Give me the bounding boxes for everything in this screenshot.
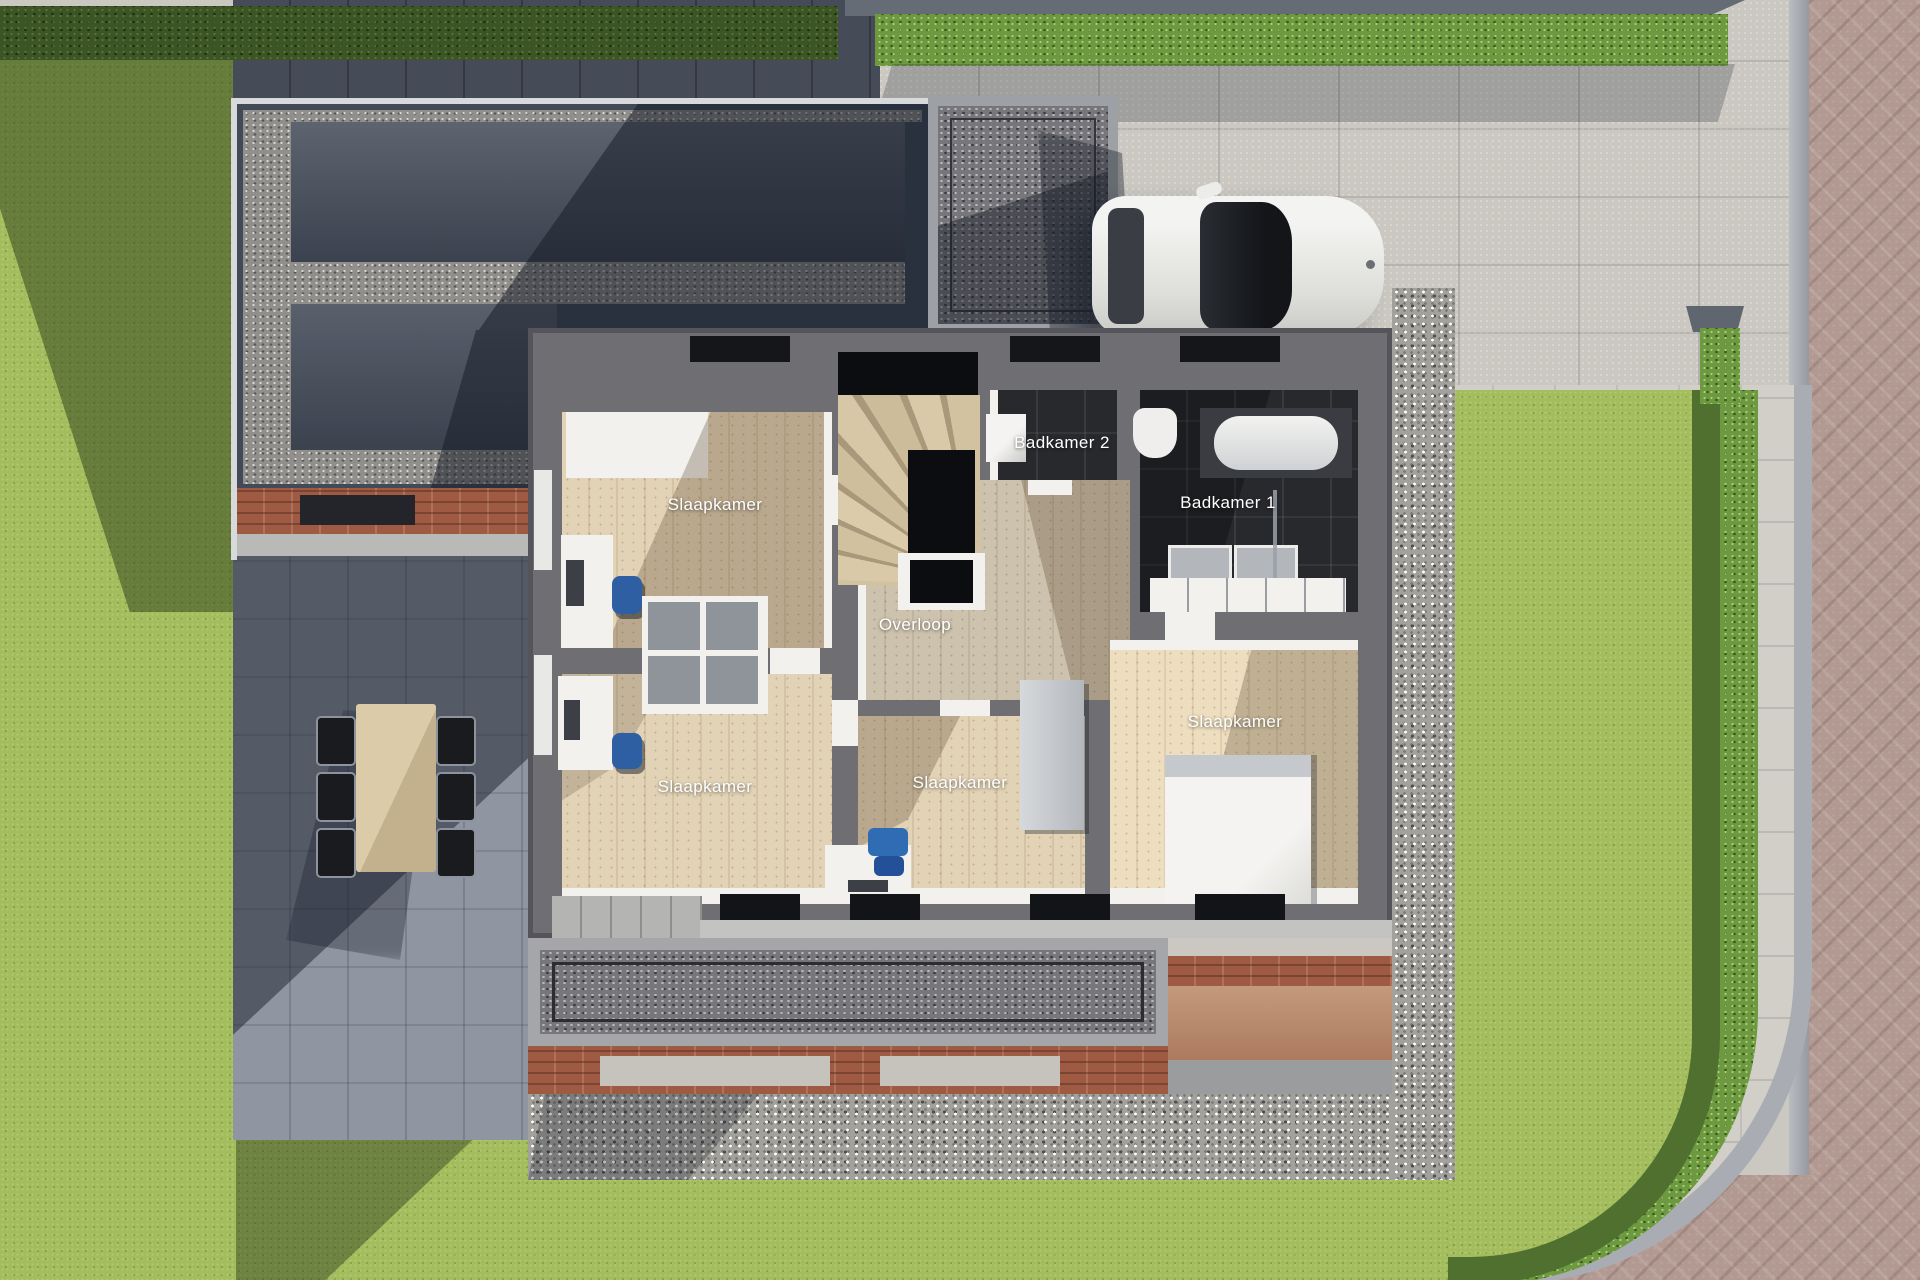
room-label: Slaapkamer xyxy=(658,777,753,797)
dining-table xyxy=(356,704,436,872)
car-glass-cabin xyxy=(1200,202,1292,330)
door-threshold xyxy=(770,648,820,674)
wardrobe xyxy=(1020,680,1084,830)
wall-face-lit xyxy=(1110,640,1358,650)
facade-window-void xyxy=(720,894,800,920)
hedge-top-right xyxy=(875,14,1728,66)
office-chair xyxy=(612,576,642,614)
facade-window-void xyxy=(1030,894,1110,920)
bathtub xyxy=(1214,416,1338,470)
bed-headboard xyxy=(1165,755,1311,777)
dining-chair xyxy=(316,772,356,822)
terracotta-roof-slope xyxy=(1168,986,1392,1060)
facade-window-void xyxy=(1195,894,1285,920)
brick-wall-recess xyxy=(880,1056,1060,1086)
office-chair-base xyxy=(874,856,904,876)
room-label: Slaapkamer xyxy=(913,773,1008,793)
toilet xyxy=(1133,408,1177,458)
lawn-right xyxy=(1448,390,1720,1280)
office-chair xyxy=(612,733,642,769)
door-threshold xyxy=(832,700,858,746)
dormer-window xyxy=(534,470,552,570)
room-label: Slaapkamer xyxy=(668,495,763,515)
hedge-top-left xyxy=(0,6,838,60)
room-label: Badkamer 2 xyxy=(1014,433,1110,453)
door-threshold xyxy=(1165,612,1215,640)
terrace-tiles xyxy=(552,896,702,938)
car-emblem xyxy=(1366,260,1375,269)
monitor xyxy=(564,700,580,740)
house-floorplan: Slaapkamer Badkamer 2 Badkamer 1 Overloo… xyxy=(528,328,1392,938)
door-threshold xyxy=(1028,480,1072,495)
dining-chair xyxy=(436,828,476,878)
stairwell-void-top xyxy=(838,352,978,400)
dining-chair xyxy=(436,716,476,766)
roof-void xyxy=(690,336,790,362)
dining-chair xyxy=(436,772,476,822)
brick-wall-recess xyxy=(600,1056,830,1086)
wall-face-lit xyxy=(824,412,832,648)
hedge-small xyxy=(1700,328,1740,404)
garage-sill xyxy=(237,534,532,556)
room-label: Slaapkamer xyxy=(1188,712,1283,732)
monitor xyxy=(566,560,584,606)
room-label: Overloop xyxy=(879,615,951,635)
monitor xyxy=(848,880,888,892)
room-label: Badkamer 1 xyxy=(1180,493,1276,513)
lower-roof-inner-line xyxy=(552,962,1144,1022)
terracotta-roof-edge xyxy=(1168,956,1392,986)
street-herringbone xyxy=(1809,0,1920,1280)
dormer-window xyxy=(534,655,552,755)
office-chair xyxy=(868,828,908,856)
stairwell-opening xyxy=(910,560,973,603)
garage-window xyxy=(300,495,415,525)
dining-chair xyxy=(316,716,356,766)
floorplan-render: Slaapkamer Badkamer 2 Badkamer 1 Overloo… xyxy=(0,0,1920,1280)
bed xyxy=(1165,755,1311,904)
facade-sill xyxy=(700,920,1392,938)
vanity-cabinet xyxy=(1150,578,1346,612)
facade-window-void xyxy=(850,894,920,920)
roof-void xyxy=(1010,336,1100,362)
roof-void xyxy=(1180,336,1280,362)
dining-chair xyxy=(316,828,356,878)
terracotta-roof-base xyxy=(1168,1060,1392,1094)
door-threshold xyxy=(940,700,990,716)
closet xyxy=(642,596,768,714)
gravel-strip-east xyxy=(1392,288,1455,1180)
car-rear-window xyxy=(1108,208,1144,324)
